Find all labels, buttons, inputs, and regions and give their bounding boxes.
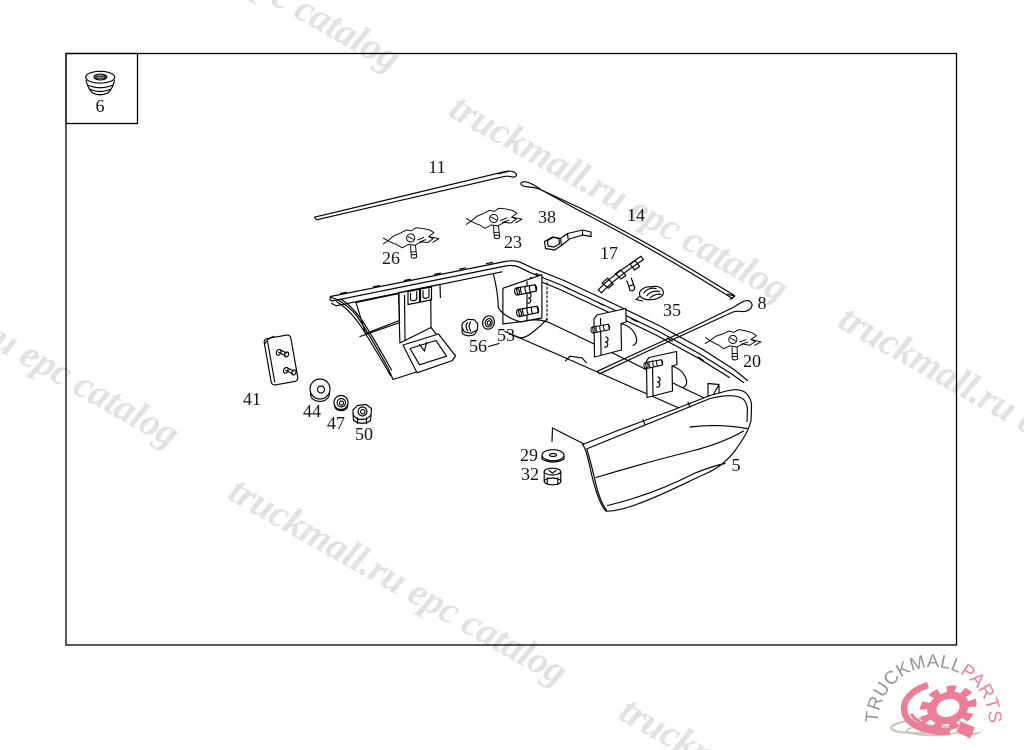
svg-text:11: 11 (428, 157, 445, 177)
svg-text:47: 47 (327, 413, 345, 433)
svg-text:50: 50 (355, 424, 373, 444)
svg-text:26: 26 (382, 248, 400, 268)
svg-text:6: 6 (96, 96, 105, 116)
svg-text:44: 44 (303, 401, 321, 421)
svg-text:23: 23 (504, 232, 522, 252)
svg-text:41: 41 (243, 389, 261, 409)
svg-text:20: 20 (743, 351, 761, 371)
svg-text:53: 53 (497, 325, 515, 345)
svg-text:32: 32 (521, 464, 539, 484)
svg-text:29: 29 (520, 445, 538, 465)
svg-text:38: 38 (538, 207, 556, 227)
svg-text:35: 35 (663, 300, 681, 320)
svg-text:8: 8 (758, 293, 767, 313)
svg-text:5: 5 (732, 455, 741, 475)
svg-text:56: 56 (469, 336, 487, 356)
svg-text:14: 14 (627, 205, 645, 225)
svg-text:17: 17 (600, 243, 618, 263)
